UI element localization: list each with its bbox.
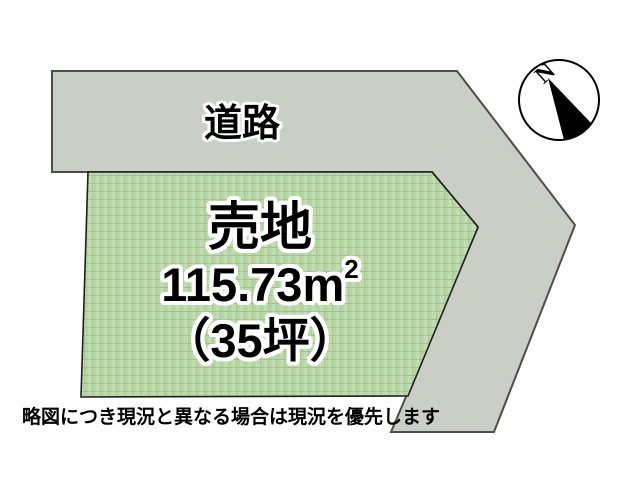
plot-area-unit: m (302, 258, 344, 311)
plot-title: 売地 (100, 199, 420, 257)
disclaimer-caption: 略図につき現況と異なる場合は現況を優先します (22, 405, 622, 431)
compass: N (519, 58, 599, 140)
plot-area-value: 115.73 (161, 258, 302, 311)
land-plot-diagram: N 道路 売地 115.73m2 （35坪） 略図につき現況と異なる場合は現況を… (0, 0, 640, 480)
plot-area-exponent: 2 (344, 254, 358, 284)
plot-area: 115.73m2 (100, 257, 420, 312)
road-label: 道路 (142, 100, 342, 148)
plot-label-block: 売地 115.73m2 （35坪） (100, 199, 420, 370)
plot-tsubo: （35坪） (100, 312, 420, 370)
